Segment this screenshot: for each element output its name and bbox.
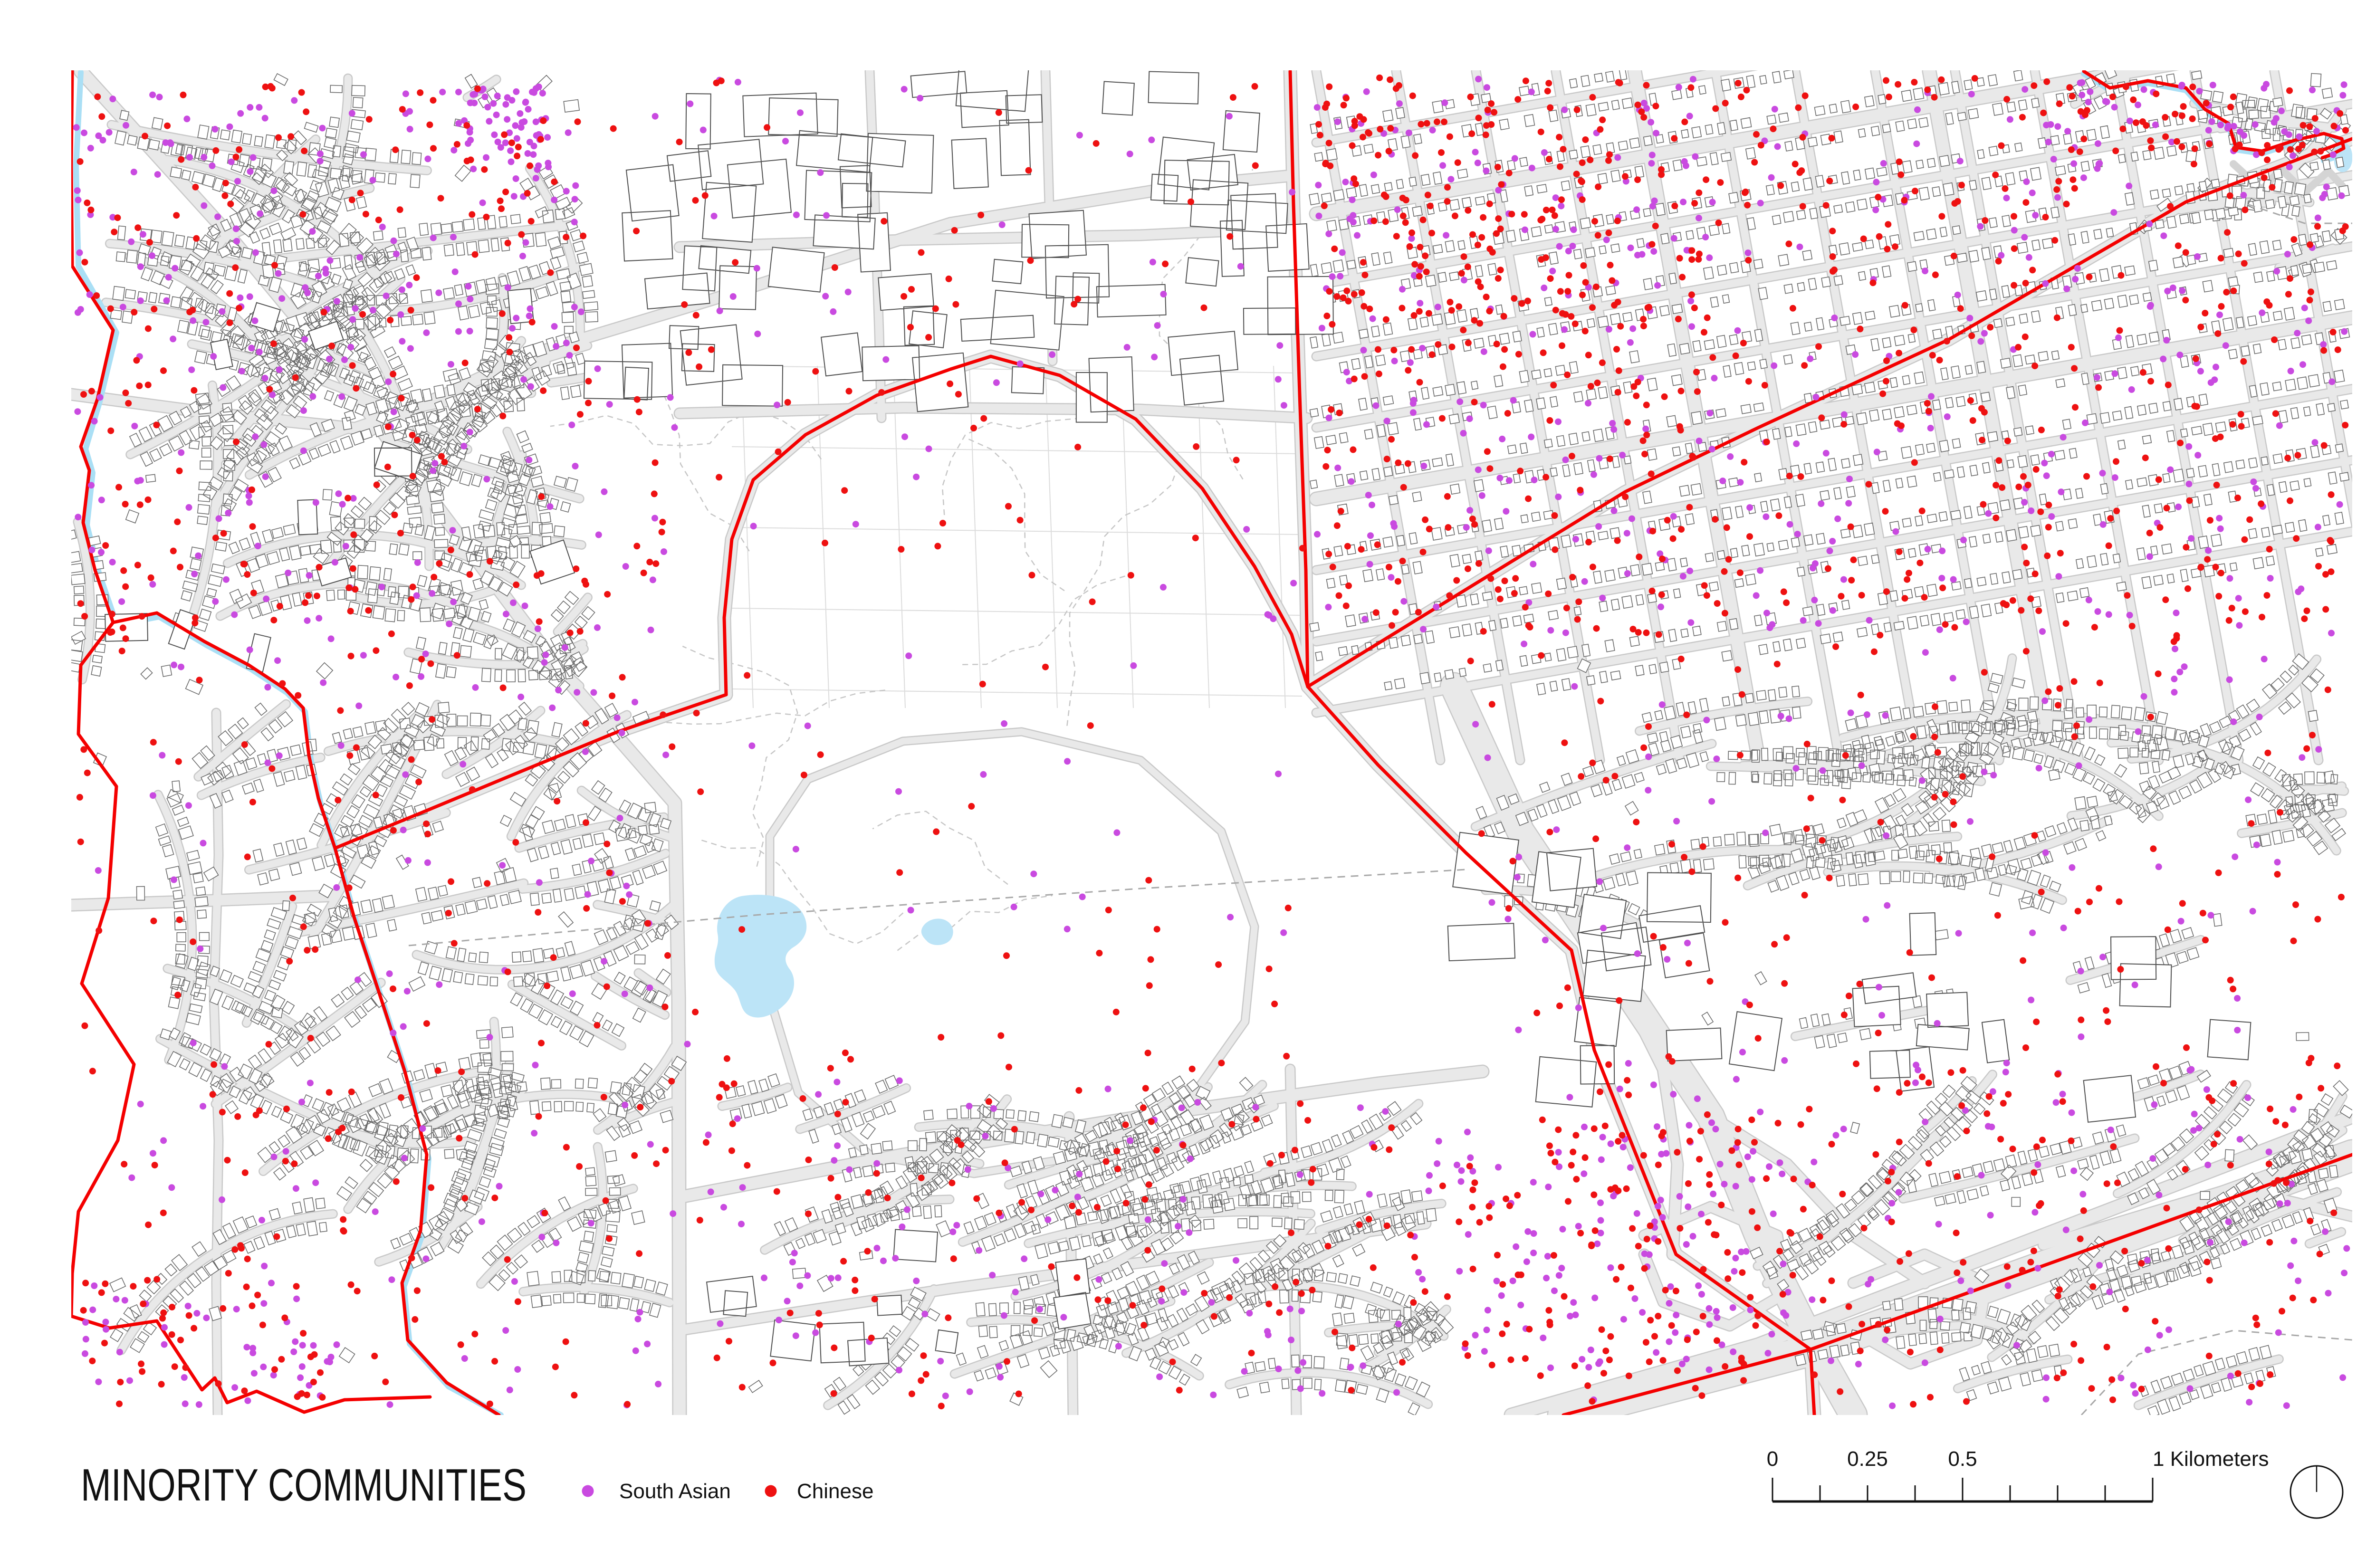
legend-label-chinese: Chinese xyxy=(797,1480,873,1503)
legend-swatch-south-asian xyxy=(582,1485,594,1497)
north-indicator xyxy=(2290,1466,2343,1518)
legend: South Asian Chinese xyxy=(582,1480,874,1503)
scale-bar-label: 0.25 xyxy=(1847,1447,1888,1471)
scale-bar: 00.250.51 Kilometers xyxy=(1767,1447,2269,1501)
legend-swatch-chinese xyxy=(765,1485,777,1497)
map-canvas: MINORITY COMMUNITIES South Asian Chinese… xyxy=(0,0,2376,1568)
map-content xyxy=(64,0,2376,1417)
scale-bar-label: 1 Kilometers xyxy=(2153,1447,2269,1471)
scale-bar-label: 0.5 xyxy=(1948,1447,1977,1471)
legend-label-south-asian: South Asian xyxy=(619,1480,731,1503)
page-title: MINORITY COMMUNITIES xyxy=(81,1460,527,1511)
scale-bar-label: 0 xyxy=(1767,1447,1778,1471)
